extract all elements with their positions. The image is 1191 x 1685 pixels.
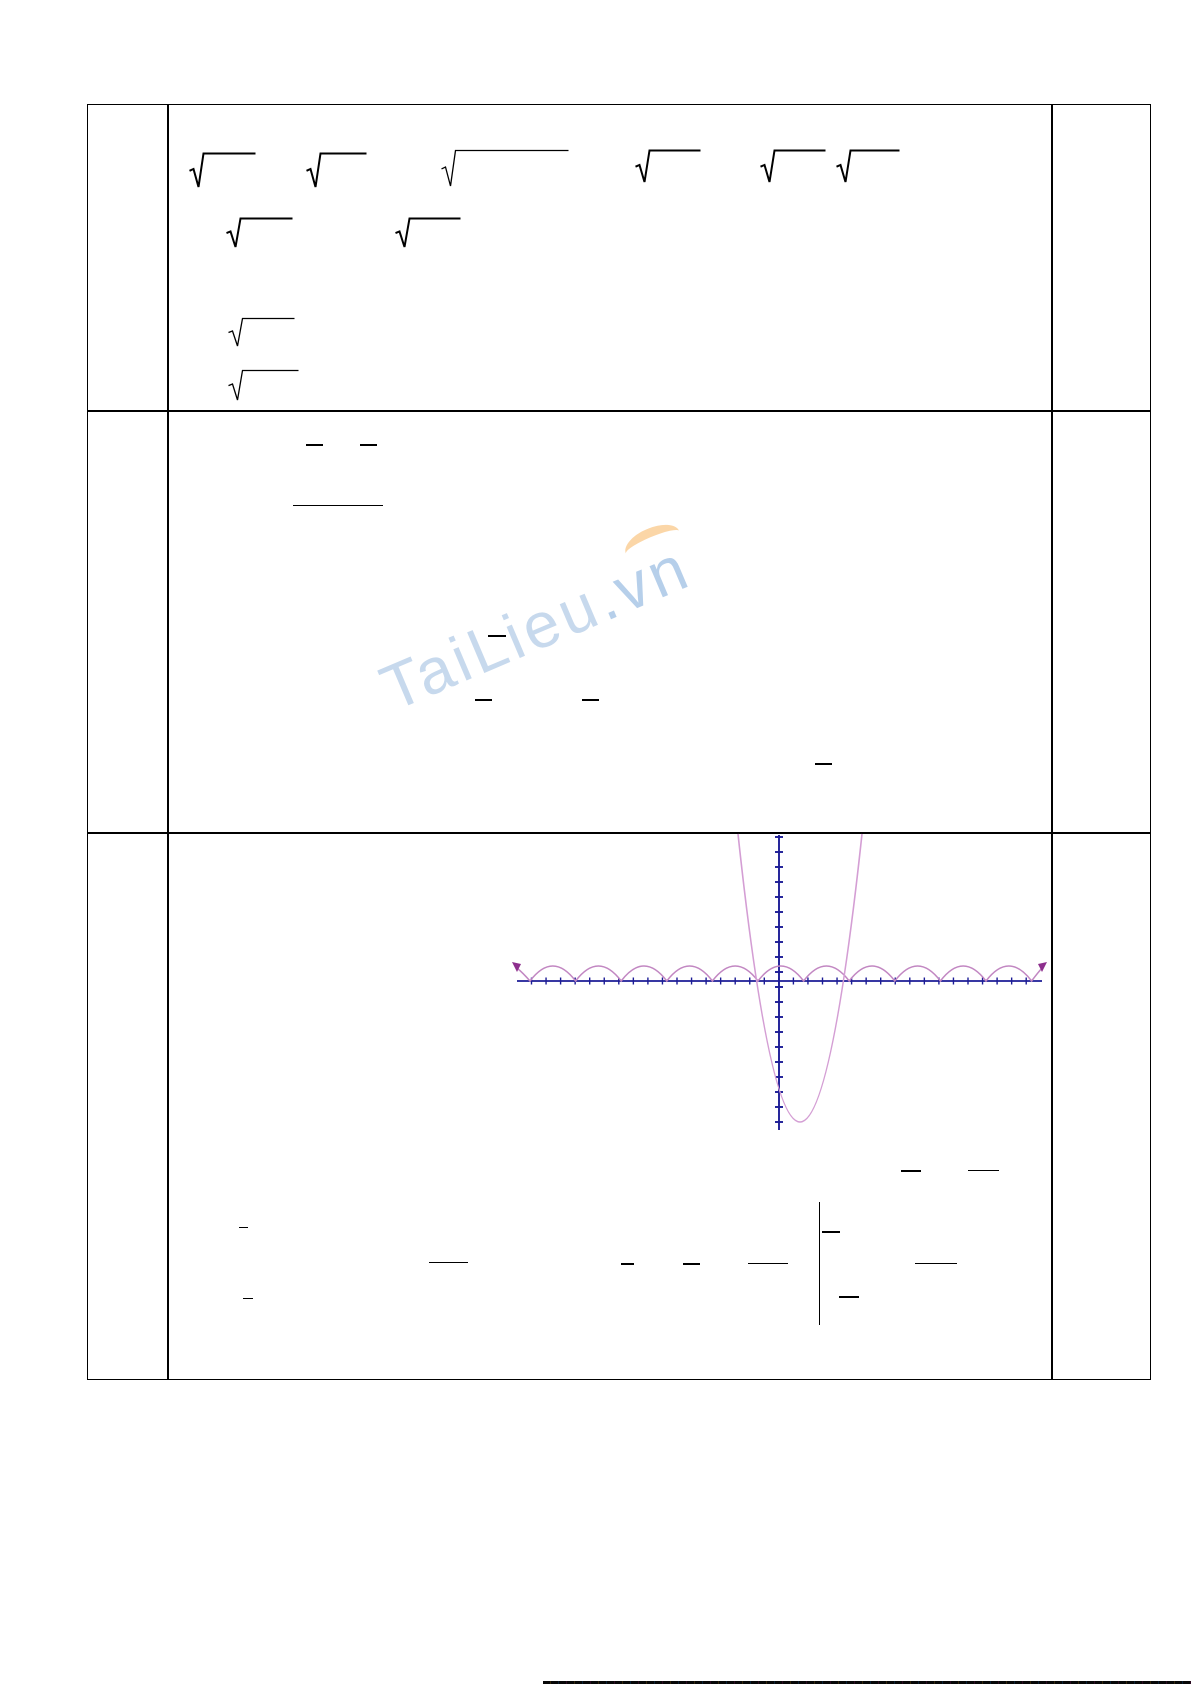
radical-sign bbox=[306, 151, 372, 193]
fraction-bar bbox=[243, 1298, 253, 1299]
fraction-bar bbox=[621, 1263, 634, 1265]
radical-sign bbox=[635, 148, 706, 188]
fraction-bar bbox=[915, 1263, 957, 1264]
fraction-bar bbox=[839, 1296, 859, 1298]
fraction-bar bbox=[239, 1227, 248, 1228]
fraction-bar bbox=[429, 1262, 468, 1263]
fraction-bar bbox=[475, 699, 492, 701]
answer-table-frame bbox=[87, 104, 1151, 1380]
fraction-bar bbox=[748, 1263, 788, 1264]
fraction-bar bbox=[815, 763, 832, 765]
cases-vertical-rule bbox=[819, 1202, 820, 1325]
table-column-divider-right bbox=[1051, 104, 1053, 1380]
table-row-divider-1 bbox=[87, 410, 1151, 412]
fraction-bar bbox=[306, 444, 323, 446]
radical-sign bbox=[760, 148, 831, 188]
radical-sign bbox=[228, 368, 304, 406]
fraction-bar bbox=[822, 1231, 840, 1233]
radical-sign bbox=[395, 216, 466, 253]
fraction-bar bbox=[968, 1170, 999, 1171]
radical-sign bbox=[441, 148, 574, 192]
cropped-text-strip bbox=[543, 1681, 1191, 1684]
fraction-bar bbox=[360, 444, 377, 446]
document-page: TaiLieu.vn bbox=[0, 0, 1191, 1685]
radical-sign bbox=[836, 148, 905, 188]
fraction-bar bbox=[683, 1263, 700, 1265]
fraction-bar bbox=[582, 699, 599, 701]
fraction-bar bbox=[293, 505, 383, 506]
fraction-bar bbox=[901, 1170, 921, 1172]
fraction-bar bbox=[488, 635, 506, 637]
table-row-divider-2 bbox=[87, 832, 1151, 834]
radical-sign bbox=[226, 216, 298, 253]
radical-sign bbox=[228, 316, 300, 352]
radical-sign bbox=[189, 151, 261, 193]
table-column-divider-left bbox=[167, 104, 169, 1380]
